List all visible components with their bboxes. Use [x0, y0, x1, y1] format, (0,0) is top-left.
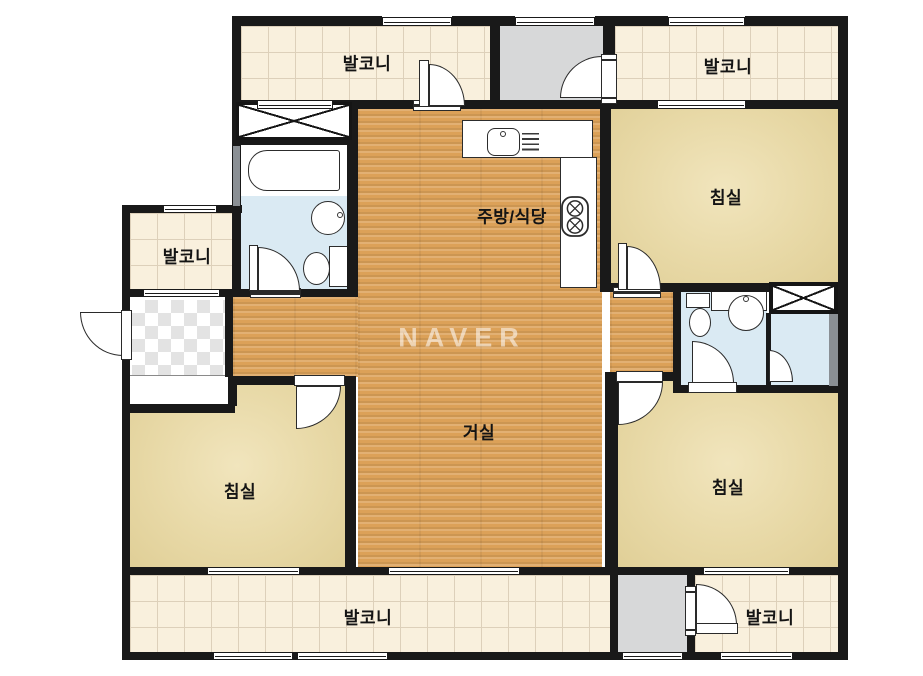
room-label-balcony-left: 발코니	[163, 243, 211, 268]
wall	[610, 567, 618, 660]
naver-watermark: NAVER	[398, 323, 526, 354]
wall	[228, 376, 237, 406]
wall	[345, 376, 356, 567]
door-leaf	[696, 623, 738, 634]
duct-shaft-left	[233, 146, 240, 206]
room-label-balcony-bottom: 발코니	[344, 604, 392, 629]
washbasin-left	[311, 201, 345, 235]
hallway-floor-left	[233, 297, 358, 377]
shoe-cabinet	[129, 375, 232, 405]
wall	[603, 16, 615, 56]
door-leaf	[294, 375, 345, 386]
door-frame	[601, 54, 617, 104]
closet-x-bathroom-right	[769, 282, 838, 314]
window	[668, 17, 745, 26]
wall	[452, 16, 515, 26]
wall	[122, 358, 130, 660]
door-frame	[685, 586, 696, 636]
wall	[793, 652, 838, 660]
hallway-floor-right	[610, 291, 673, 372]
window	[622, 652, 683, 660]
front-door-leaf	[121, 310, 132, 360]
toilet-bowl-right	[689, 308, 711, 337]
window	[703, 567, 790, 575]
wall	[300, 567, 388, 575]
window	[297, 652, 388, 660]
window	[207, 567, 300, 575]
faucet-dot-left	[337, 212, 343, 218]
entrance-tile	[132, 300, 225, 376]
window	[163, 205, 217, 213]
window	[515, 17, 595, 26]
wall	[122, 404, 235, 413]
room-label-balcony-bottom-right: 발코니	[746, 604, 794, 629]
room-label-bedroom-bottom-left: 침실	[224, 478, 256, 503]
window	[257, 100, 333, 109]
floorplan: 발코니 발코니 발코니 발코니 발코니 침실 침실 침실 주방/식당 거실 NA…	[0, 0, 923, 676]
window	[213, 652, 293, 660]
wall	[600, 100, 611, 285]
kitchen-faucet-dot	[500, 131, 506, 137]
door-leaf	[616, 371, 663, 382]
wall	[605, 372, 618, 567]
wall	[790, 567, 838, 575]
utility-room-bottom-floor	[618, 575, 687, 652]
window	[388, 567, 520, 575]
toilet-tank-right	[686, 293, 710, 308]
duct-shaft-right	[829, 312, 838, 386]
wall	[520, 567, 618, 575]
toilet-tank-left	[329, 246, 348, 287]
front-door-swing	[80, 312, 123, 356]
wall	[687, 634, 695, 660]
wall	[122, 205, 130, 310]
room-label-balcony-top-right: 발코니	[704, 53, 752, 78]
wall	[490, 16, 500, 109]
bathtub	[248, 150, 340, 191]
window	[657, 100, 746, 109]
door-leaf	[618, 243, 627, 290]
wall	[388, 652, 622, 660]
wall	[122, 567, 207, 575]
wall	[673, 283, 681, 393]
window	[143, 289, 220, 297]
wall	[618, 567, 703, 575]
window	[382, 17, 452, 26]
wall	[737, 385, 848, 393]
wall	[746, 100, 848, 109]
room-label-balcony-top-left: 발코니	[343, 50, 391, 75]
dish-rack-icon	[522, 133, 539, 152]
toilet-bowl-left	[303, 252, 330, 285]
wall	[232, 16, 382, 26]
faucet-dot-right	[743, 296, 749, 302]
room-label-bedroom-top-right: 침실	[710, 184, 742, 209]
door-leaf	[419, 60, 429, 107]
room-label-bedroom-bottom-right: 침실	[712, 474, 744, 499]
wall	[838, 16, 848, 660]
window	[720, 652, 793, 660]
room-label-living-room: 거실	[463, 419, 495, 444]
wall	[230, 376, 294, 385]
wall	[225, 293, 233, 377]
wall	[745, 16, 848, 26]
door-leaf	[688, 382, 737, 393]
room-label-kitchen-dining: 주방/식당	[477, 203, 547, 228]
stove-burners-icon	[561, 196, 589, 237]
door-leaf	[249, 245, 258, 291]
wall	[122, 652, 213, 660]
